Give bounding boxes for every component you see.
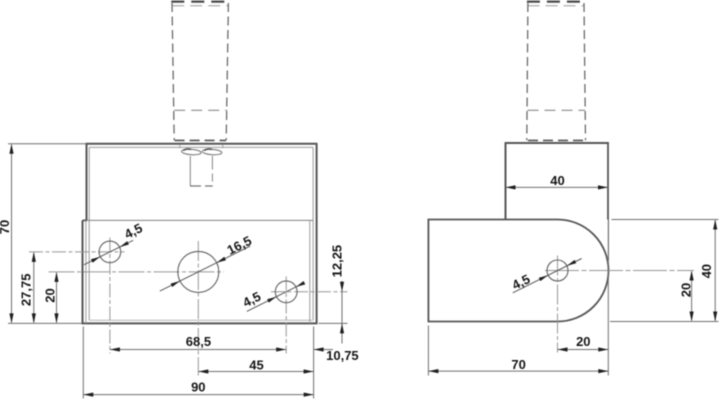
svg-text:45: 45 [249,358,263,373]
svg-text:20: 20 [679,283,694,297]
svg-text:40: 40 [699,264,714,278]
svg-text:90: 90 [191,380,205,395]
svg-text:70: 70 [511,357,525,372]
svg-text:12,25: 12,25 [330,245,345,278]
svg-text:10,75: 10,75 [326,348,359,363]
svg-text:40: 40 [550,173,564,188]
svg-text:68,5: 68,5 [186,334,211,349]
svg-text:20: 20 [576,334,590,349]
svg-text:27,75: 27,75 [19,274,34,307]
svg-text:20: 20 [43,288,58,302]
svg-text:70: 70 [0,220,12,234]
